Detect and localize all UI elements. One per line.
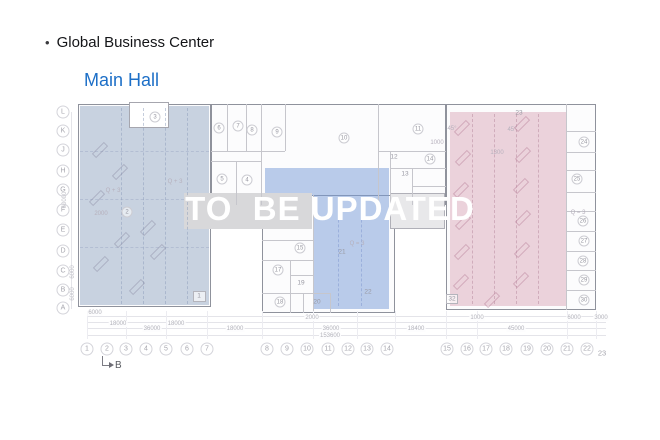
room-number: 23	[515, 110, 522, 117]
grid-col-label: 21	[561, 343, 574, 356]
room-number: 4	[242, 175, 253, 186]
wall-line	[566, 270, 596, 271]
extension-line	[262, 311, 263, 339]
dimension-label: 18000	[109, 321, 128, 327]
room-number: 15	[295, 243, 306, 254]
wall-line	[290, 275, 313, 276]
grid-col-label: 8	[261, 343, 274, 356]
grid-col-label: 3	[120, 343, 133, 356]
room-number: 9	[272, 127, 283, 138]
plan-annotation: 1300	[490, 150, 503, 156]
room-number: 21	[338, 249, 345, 256]
room-number: 17	[273, 265, 284, 276]
room-number: 18	[275, 297, 286, 308]
grid-col-label: 20	[541, 343, 554, 356]
dimension-label: 18000	[167, 321, 186, 327]
room-number: 28	[578, 256, 589, 267]
grid-col-label: 1	[81, 343, 94, 356]
wall-line	[303, 293, 304, 313]
grid-row-label: B	[57, 284, 70, 297]
dimension-line	[87, 316, 606, 317]
grid-col-label: 17	[480, 343, 493, 356]
grid-col-label: 15	[441, 343, 454, 356]
grid-row-label: K	[57, 125, 70, 138]
wall-line	[262, 240, 313, 241]
dimension-line	[87, 328, 606, 329]
wall-line	[566, 152, 596, 153]
grid-col-label: 9	[281, 343, 294, 356]
dimension-label: 45000	[507, 326, 526, 332]
room-number: 11	[413, 124, 424, 135]
grid-row-label: H	[57, 165, 70, 178]
room-number: 5	[217, 174, 228, 185]
room-number: 20	[313, 299, 320, 306]
room-number: 30	[579, 295, 590, 306]
dimension-line	[87, 335, 606, 336]
room-number: 22	[364, 289, 371, 296]
room-number: 6	[214, 123, 225, 134]
wall-line	[390, 168, 446, 169]
room-number: 7	[233, 121, 244, 132]
room-number: 3	[150, 112, 161, 123]
grid-col-label: 10	[301, 343, 314, 356]
grid-row-label: J	[57, 144, 70, 157]
dimension-label: 2000	[304, 315, 319, 321]
grid-col-label: 12	[342, 343, 355, 356]
room-number: 19	[297, 280, 304, 287]
grid-col-label: 16	[461, 343, 474, 356]
extension-line	[357, 311, 358, 339]
grid-col-label: 23	[598, 349, 606, 358]
grid-row-label: D	[57, 245, 70, 258]
wall-line	[566, 131, 596, 132]
wall-line	[330, 293, 331, 313]
wall-line	[378, 151, 446, 152]
wall-line	[211, 151, 285, 152]
page: • Global Business Center Main Hall	[0, 0, 660, 440]
wall-line	[290, 260, 291, 313]
dimension-label: 6000	[70, 265, 76, 278]
dimension-label: 36000	[143, 326, 162, 332]
room-number: 27	[579, 236, 590, 247]
room-number: 12	[390, 154, 397, 161]
room-number: 32	[448, 296, 455, 303]
grid-col-label: 2	[101, 343, 114, 356]
wall-line	[227, 104, 228, 151]
grid-col-label: 19	[521, 343, 534, 356]
dimension-label: 18400	[407, 326, 426, 332]
room-number: 25	[572, 174, 583, 185]
section-marker-label: B	[115, 360, 122, 371]
dimension-label: 153600	[319, 333, 341, 339]
grid-col-label: 4	[140, 343, 153, 356]
room-number: 10	[339, 133, 350, 144]
wall-line	[566, 290, 596, 291]
wall-line	[285, 104, 286, 151]
extension-line	[446, 311, 447, 339]
grid-col-label: 13	[361, 343, 374, 356]
watermark: TO BE UPDATED	[0, 192, 660, 225]
dimension-label: 6000	[87, 310, 102, 316]
grid-row-label: E	[57, 224, 70, 237]
extension-line	[395, 311, 396, 339]
wall-line	[566, 170, 596, 171]
wall-line	[566, 231, 596, 232]
wall-line	[262, 293, 330, 294]
dimension-label: 36000	[322, 326, 341, 332]
room-number: 14	[425, 154, 436, 165]
grid-row-label: C	[57, 265, 70, 278]
grid-row-label: A	[57, 302, 70, 315]
section-arrow-icon	[109, 362, 114, 368]
dimension-label: 1000	[469, 315, 484, 321]
plan-annotation: Q = 3	[350, 241, 365, 247]
dimension-label: 6000	[70, 287, 76, 300]
dimension-label: 18000	[226, 326, 245, 332]
grid-col-label: 6	[181, 343, 194, 356]
room-number: 13	[401, 171, 408, 178]
room-number: 29	[579, 275, 590, 286]
grid-col-label: 5	[160, 343, 173, 356]
grid-dash-line	[80, 247, 209, 248]
plan-annotation: 1000	[430, 140, 443, 146]
floor-plan: B TO BE UPDATED LKJHGFEDCBA1234567891011…	[0, 0, 660, 440]
room-number: 24	[579, 137, 590, 148]
room-number: 8	[247, 125, 258, 136]
grid-col-label: 7	[201, 343, 214, 356]
dimension-label: 6000	[566, 315, 581, 321]
extension-line	[207, 311, 208, 339]
wall-line	[566, 251, 596, 252]
room-number: 1	[197, 293, 201, 300]
grid-col-label: 18	[500, 343, 513, 356]
grid-row-label: L	[57, 106, 70, 119]
dimension-label: 3000	[593, 315, 608, 321]
dimension-line	[87, 322, 606, 323]
grid-col-label: 14	[381, 343, 394, 356]
grid-col-label: 11	[322, 343, 335, 356]
wall-line	[262, 260, 313, 261]
wall-line	[412, 186, 446, 187]
plan-annotation: Q + 3	[168, 179, 183, 185]
grid-col-label: 22	[581, 343, 594, 356]
